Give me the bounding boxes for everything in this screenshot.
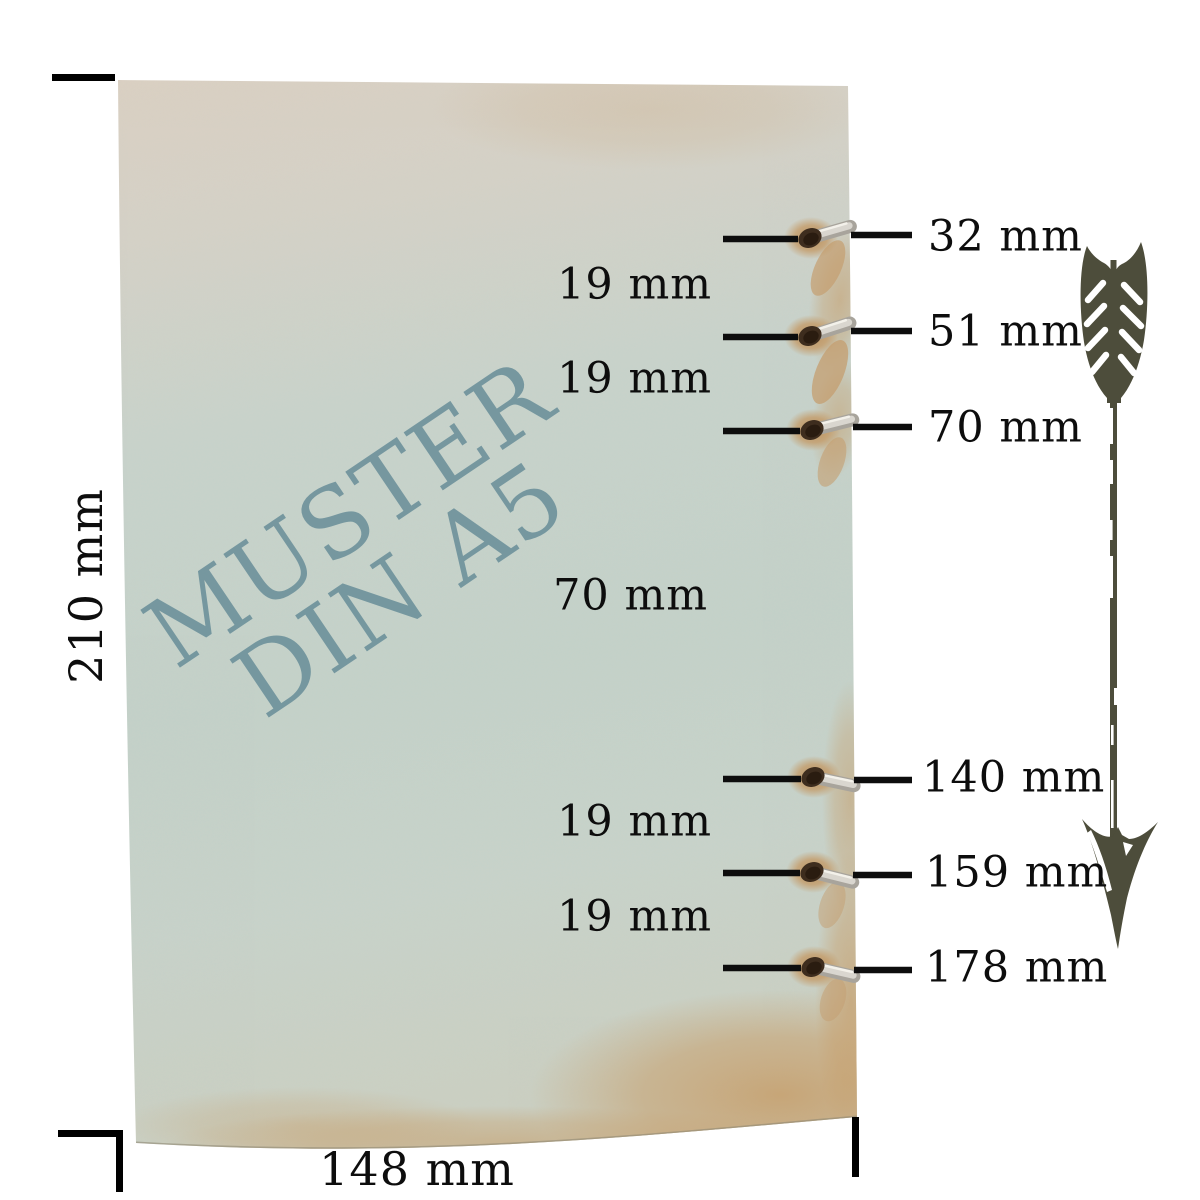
dimension-tick-bottom-left-vertical <box>116 1130 123 1192</box>
down-arrow-icon <box>1081 242 1158 949</box>
hole-position-label-4: 140 mm <box>922 757 1105 800</box>
gap-label-1: 19 mm <box>557 264 712 307</box>
din-a5-hole-position-diagram: MUSTER DIN A5 32 mm 51 mm 70 mm 140 mm 1… <box>0 0 1200 1200</box>
hole-position-label-3: 70 mm <box>928 407 1083 450</box>
hole-position-label-5: 159 mm <box>925 852 1108 895</box>
arrow-fletching-spine <box>1111 260 1117 403</box>
hole-position-label-1: 32 mm <box>928 216 1083 259</box>
gap-label-5: 19 mm <box>557 896 712 939</box>
sheet-height-label: 210 mm <box>63 488 109 684</box>
dimension-tick-bottom-left-horizontal <box>58 1130 120 1137</box>
dimension-tick-top-left <box>52 74 115 81</box>
hole-position-label-2: 51 mm <box>928 311 1083 354</box>
sheet-width-label: 148 mm <box>319 1146 515 1192</box>
gap-label-3: 70 mm <box>553 575 708 618</box>
gap-label-4: 19 mm <box>557 801 712 844</box>
gap-label-2: 19 mm <box>557 358 712 401</box>
dimension-tick-bottom-right <box>852 1117 859 1177</box>
hole-position-label-6: 178 mm <box>925 947 1108 990</box>
